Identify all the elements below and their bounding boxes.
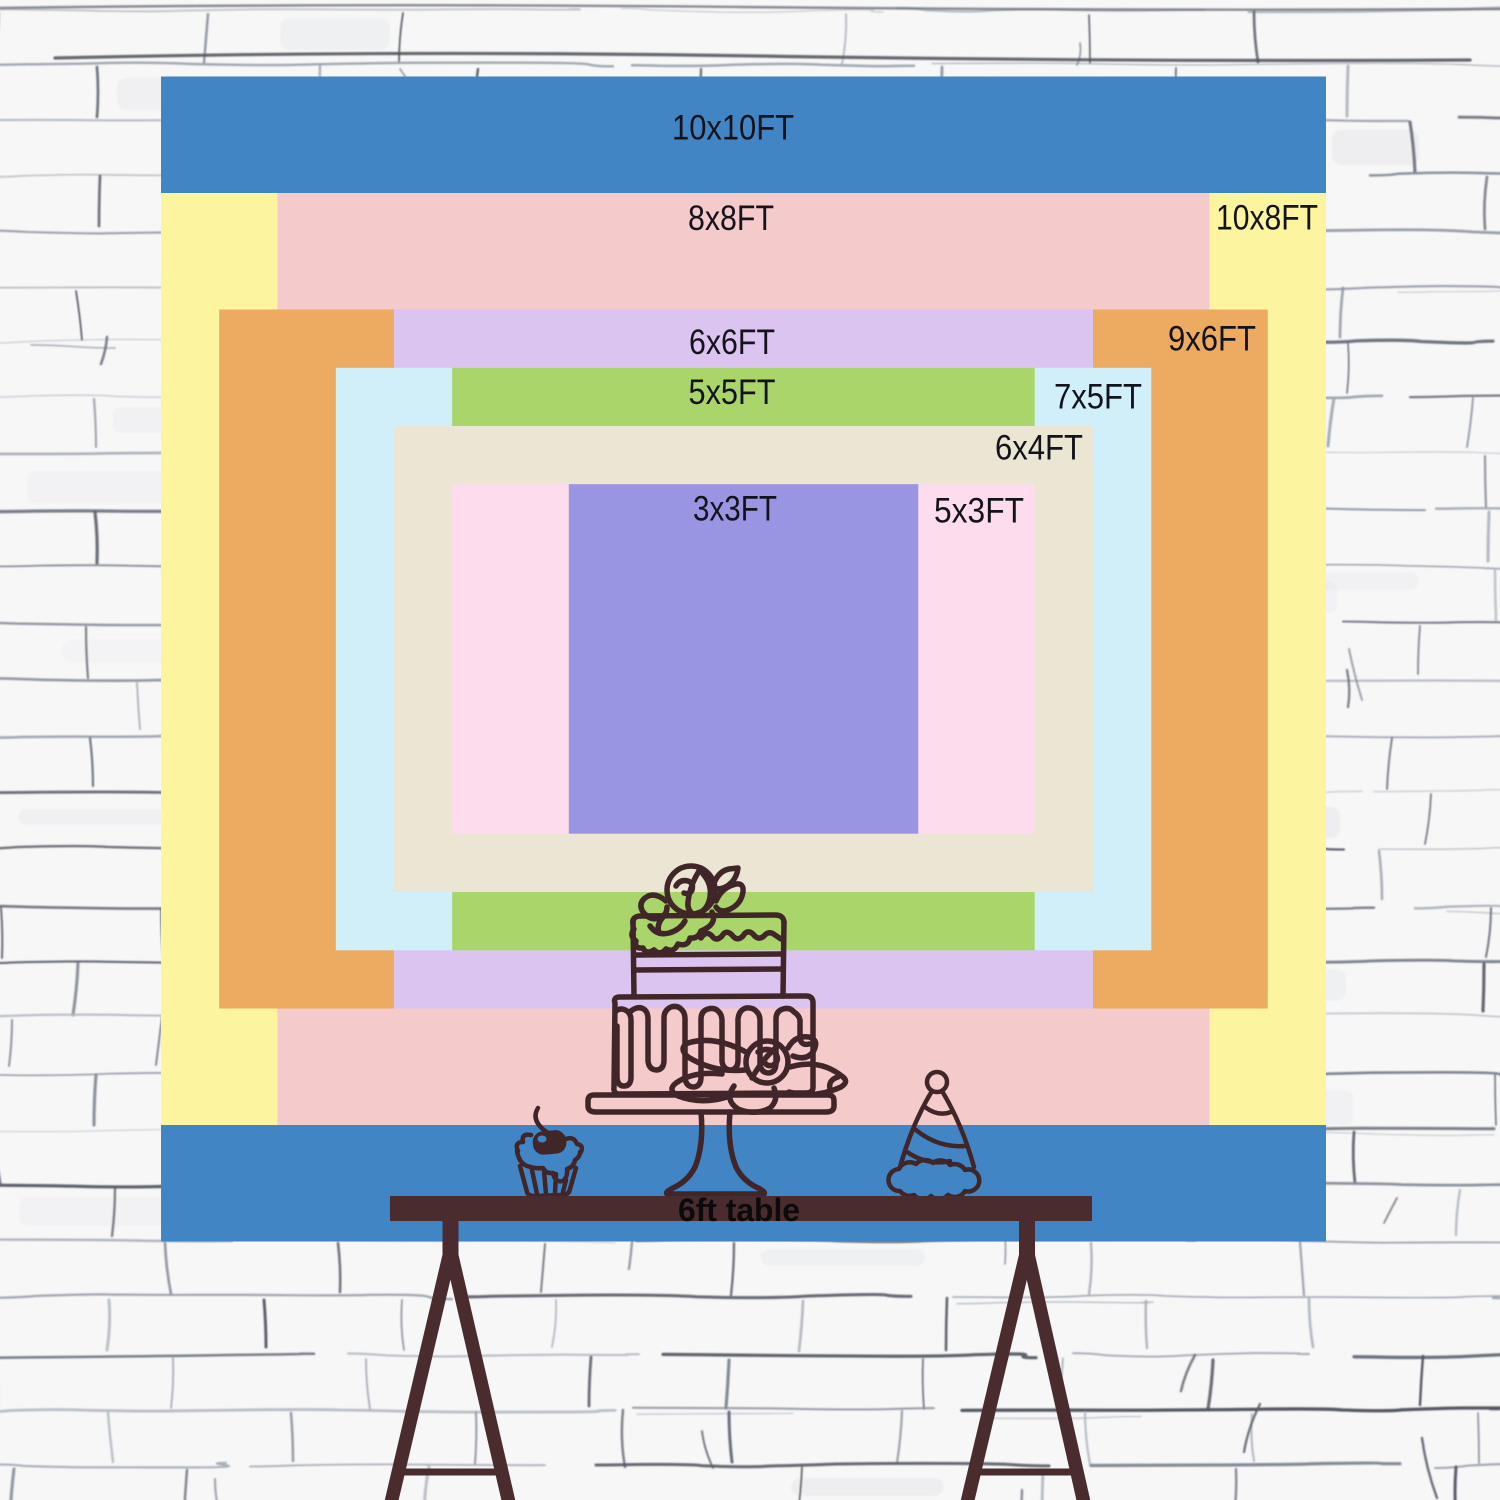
svg-text:7x5FT: 7x5FT — [1054, 378, 1142, 417]
svg-text:3x3FT: 3x3FT — [693, 490, 777, 529]
svg-text:10x10FT: 10x10FT — [672, 109, 794, 148]
svg-text:6x6FT: 6x6FT — [689, 323, 775, 362]
svg-text:8x8FT: 8x8FT — [688, 199, 774, 238]
svg-text:6x4FT: 6x4FT — [995, 429, 1083, 468]
svg-text:5x3FT: 5x3FT — [934, 492, 1024, 531]
svg-text:5x5FT: 5x5FT — [689, 373, 776, 412]
svg-text:10x8FT: 10x8FT — [1216, 199, 1318, 238]
svg-text:9x6FT: 9x6FT — [1168, 320, 1256, 359]
svg-text:6ft table: 6ft table — [678, 1192, 800, 1228]
